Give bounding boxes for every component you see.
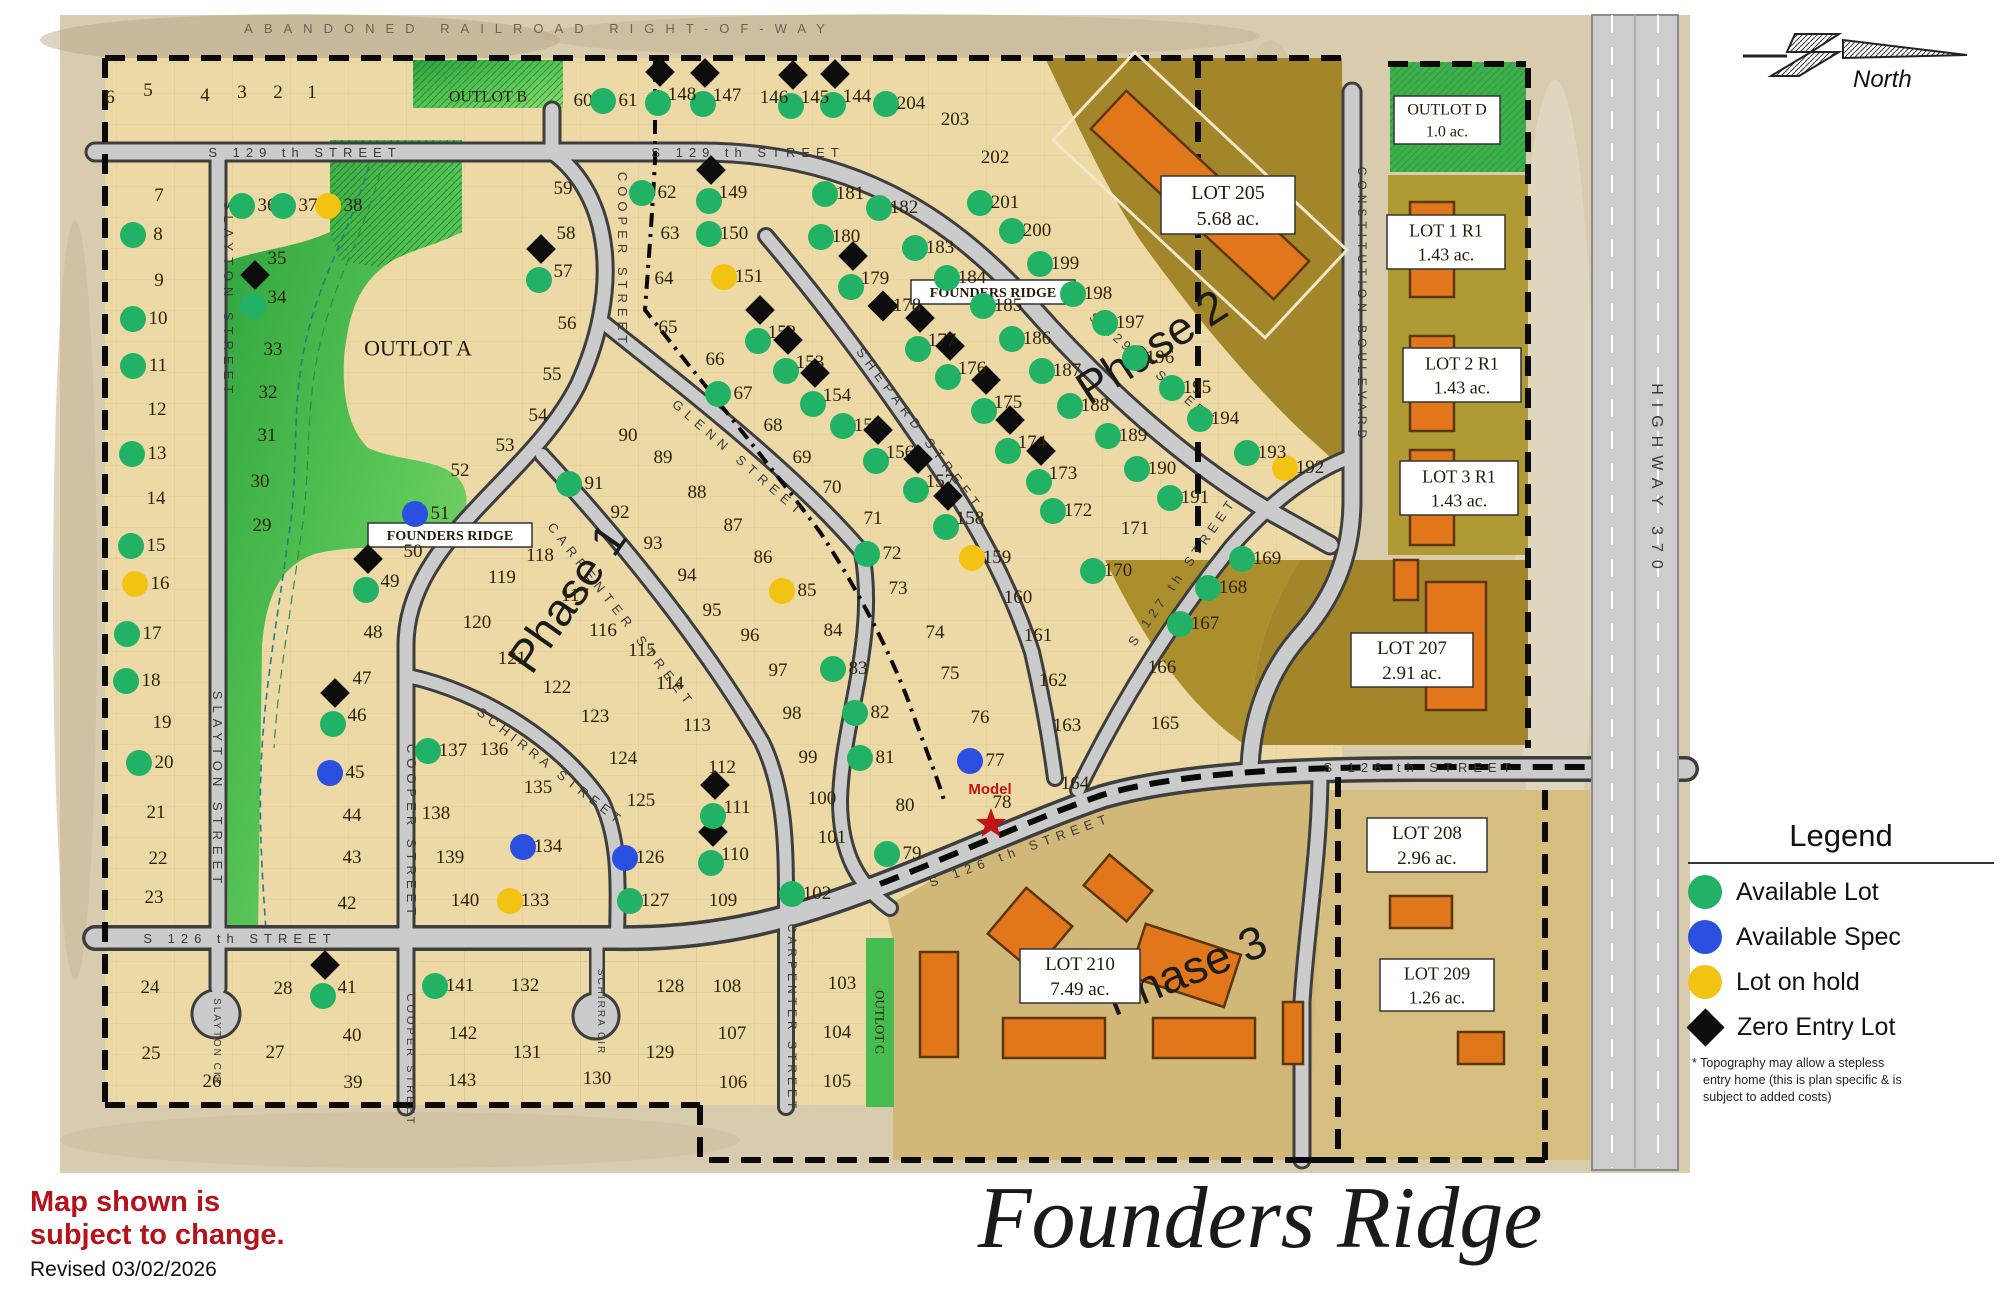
area-label: LOT 2082.96 ac. — [1367, 818, 1487, 872]
available-lot-icon — [842, 700, 868, 726]
lot-number: 31 — [258, 425, 277, 446]
lot-number: 92 — [611, 502, 630, 523]
lot-number: 12 — [148, 399, 167, 420]
lot-number: 128 — [656, 976, 685, 997]
lot-number: 104 — [823, 1022, 852, 1043]
lot-number: 154 — [823, 385, 852, 406]
lot-number: 21 — [147, 802, 166, 823]
lot-number: 189 — [1119, 425, 1148, 446]
street-label: SCHIRRA CIR — [595, 969, 606, 1055]
legend-footnote-line: subject to added costs) — [1692, 1089, 1994, 1106]
available-lot-icon — [1124, 456, 1150, 482]
available-lot-icon — [556, 471, 582, 497]
lot-number: 16 — [151, 573, 170, 594]
lot-number: 202 — [981, 147, 1010, 168]
lot-number: 50 — [404, 541, 423, 562]
disclaimer-line: subject to change. — [30, 1219, 285, 1252]
highway-370 — [1592, 15, 1678, 1170]
lot-number: 98 — [783, 703, 802, 724]
lot-number: 19 — [153, 712, 172, 733]
street-label: S 126 th STREET — [1323, 760, 1516, 775]
lot-number: 11 — [149, 355, 167, 376]
available-lot-icon — [1157, 485, 1183, 511]
available-lot-icon — [1159, 375, 1185, 401]
lot-number: 38 — [344, 195, 363, 216]
lot-number: 34 — [268, 287, 288, 308]
lot-number: 148 — [668, 84, 697, 105]
legend-item-spec: Available Spec — [1688, 920, 1994, 954]
lot-number: 44 — [343, 805, 363, 826]
disclaimer-line: Map shown is — [30, 1186, 285, 1219]
available-spec-icon — [957, 748, 983, 774]
lot-number: 173 — [1049, 463, 1078, 484]
area-label-text: 7.49 ac. — [1050, 979, 1110, 1000]
lot-number: 117 — [561, 585, 589, 606]
area-label-text: OUTLOT D — [1407, 102, 1486, 119]
lot-number: 145 — [801, 87, 830, 108]
lot-number: 55 — [543, 364, 562, 385]
area-label-text: 1.43 ac. — [1434, 377, 1490, 397]
available-lot-icon — [229, 193, 255, 219]
lot-number: 125 — [627, 790, 656, 811]
available-lot-icon — [999, 218, 1025, 244]
lot-number: 57 — [554, 261, 573, 282]
area-label: LOT 2107.49 ac. — [1020, 949, 1140, 1003]
lot-number: 194 — [1211, 408, 1240, 429]
lot-number: 53 — [496, 435, 515, 456]
lot-number: 101 — [818, 827, 847, 848]
available-lot-icon — [240, 293, 266, 319]
available-spec-icon — [612, 845, 638, 871]
lot-number: 186 — [1023, 328, 1052, 349]
lot-number: 203 — [941, 109, 970, 130]
lot-number: 111 — [723, 797, 750, 818]
lot-number: 118 — [526, 545, 554, 566]
available-lot-icon — [999, 326, 1025, 352]
available-lot-icon — [873, 91, 899, 117]
disclaimer-note: Map shown is subject to change. — [30, 1186, 285, 1252]
available-lot-icon — [590, 88, 616, 114]
area-label-text: 5.68 ac. — [1197, 208, 1260, 230]
lot-number: 87 — [724, 515, 743, 536]
lot-number: 33 — [264, 339, 283, 360]
north-label: North — [1853, 66, 1912, 94]
lot-number: 88 — [688, 482, 707, 503]
lot-number: 66 — [706, 349, 725, 370]
lot-number: 41 — [338, 977, 357, 998]
lot-number: 129 — [646, 1042, 675, 1063]
lot-number: 163 — [1053, 715, 1082, 736]
lot-number: 61 — [619, 90, 638, 111]
lot-number: 5 — [143, 80, 153, 101]
street-label: SLAYTON STREET — [221, 201, 236, 399]
lot-number: 191 — [1181, 487, 1210, 508]
railroad-right-of-way-label: ABANDONED RAILROAD RIGHT-OF-WAY — [244, 21, 836, 36]
lot-number: 198 — [1084, 283, 1113, 304]
area-label-text: LOT 3 R1 — [1422, 466, 1496, 486]
lot-number: 71 — [864, 508, 883, 529]
lot-number: 183 — [926, 237, 955, 258]
available-lot-icon — [830, 413, 856, 439]
area-label: LOT 1 R11.43 ac. — [1387, 215, 1505, 269]
lot-number: 48 — [364, 622, 383, 643]
street-label: S 129 th STREET — [651, 145, 844, 160]
lot-number: 158 — [956, 508, 985, 529]
lot-number: 150 — [720, 223, 749, 244]
lot-number: 54 — [529, 405, 549, 426]
lot-number: 62 — [658, 182, 677, 203]
legend-item-label: Zero Entry Lot — [1737, 1013, 1895, 1042]
lot-number: 49 — [381, 571, 400, 592]
lot-number: 85 — [798, 580, 817, 601]
area-label: LOT 2055.68 ac. — [1161, 176, 1295, 234]
street-label: CONSTITUTION BOULEVARD — [1355, 167, 1369, 443]
lot-number: 79 — [903, 843, 922, 864]
lot-number: 24 — [141, 977, 161, 998]
area-label-text: 1.43 ac. — [1431, 490, 1487, 510]
available-lot-icon — [970, 293, 996, 319]
area-label-text: OUTLOT C — [872, 990, 887, 1054]
plat-map-page: ABANDONED RAILROAD RIGHT-OF-WAYS 129 th … — [0, 0, 2000, 1294]
lot-number: 10 — [149, 308, 168, 329]
lot-number: 126 — [636, 847, 665, 868]
lot-number: 114 — [656, 673, 684, 694]
lot-number: 200 — [1023, 220, 1052, 241]
lot-number: 82 — [871, 702, 890, 723]
lot-number: 159 — [983, 547, 1012, 568]
street-label: S 126 th STREET — [143, 931, 336, 946]
available-spec-icon — [317, 760, 343, 786]
street-label: COOPER STREET — [615, 172, 630, 348]
lot-on-hold-icon — [959, 545, 985, 571]
available-lot-icon — [808, 224, 834, 250]
available-lot-icon — [1027, 251, 1053, 277]
legend-footnote: * Topography may allow a stepless entry … — [1688, 1055, 1994, 1106]
available-spec-icon — [402, 501, 428, 527]
lot-number: 146 — [760, 87, 789, 108]
lot-number: 72 — [883, 543, 902, 564]
north-pointer-icon — [1843, 40, 1967, 58]
lot-number: 136 — [480, 739, 509, 760]
lot-number: 182 — [890, 197, 919, 218]
lot-number: 124 — [609, 748, 638, 769]
lot-number: 134 — [534, 836, 563, 857]
lot-number: 69 — [793, 447, 812, 468]
lot-number: 39 — [344, 1072, 363, 1093]
page-title: Founders Ridge — [930, 1168, 1590, 1269]
available-lot-icon — [934, 265, 960, 291]
lot-number: 7 — [154, 185, 164, 206]
area-label: LOT 2091.26 ac. — [1380, 959, 1494, 1011]
available-lot-icon — [415, 738, 441, 764]
lot-number: 119 — [488, 567, 516, 588]
lot-number: 29 — [253, 515, 272, 536]
lot-number: 144 — [843, 86, 872, 107]
lot-number: 99 — [799, 747, 818, 768]
legend: Legend Available Lot Available Spec Lot … — [1688, 818, 1994, 1106]
lot-number: 130 — [583, 1068, 612, 1089]
lot-number: 120 — [463, 612, 492, 633]
lot-number: 65 — [659, 317, 678, 338]
available-lot-icon — [617, 888, 643, 914]
lot-number: 195 — [1183, 377, 1212, 398]
lot-number: 67 — [734, 383, 753, 404]
lot-number: 170 — [1104, 560, 1133, 581]
lot-number: 184 — [958, 267, 987, 288]
available-lot-icon — [902, 235, 928, 261]
available-lot-icon — [820, 656, 846, 682]
lot-number: 81 — [876, 747, 895, 768]
area-label: LOT 2072.91 ac. — [1351, 633, 1473, 687]
lot-number: 188 — [1081, 395, 1110, 416]
area-label-text: LOT 209 — [1404, 963, 1470, 983]
available-lot-icon — [114, 621, 140, 647]
available-lot-icon — [1688, 875, 1722, 909]
lot-number: 68 — [764, 415, 783, 436]
lot-number: 96 — [741, 625, 760, 646]
available-lot-icon — [1060, 281, 1086, 307]
lot-number: 91 — [585, 473, 604, 494]
area-label: LOT 3 R11.43 ac. — [1400, 461, 1518, 515]
lot-number: 8 — [153, 224, 163, 245]
available-lot-icon — [120, 222, 146, 248]
lot-number: 35 — [268, 248, 287, 269]
available-lot-icon — [120, 353, 146, 379]
area-label-text: LOT 208 — [1392, 823, 1462, 844]
area-label-text: LOT 1 R1 — [1409, 220, 1483, 240]
area-label: OUTLOT D1.0 ac. — [1394, 96, 1500, 144]
available-lot-icon — [119, 441, 145, 467]
lot-number: 135 — [524, 777, 553, 798]
available-lot-icon — [854, 541, 880, 567]
lot-number: 109 — [709, 890, 738, 911]
lot-number: 89 — [654, 447, 673, 468]
lot-number: 46 — [348, 705, 367, 726]
legend-item-available: Available Lot — [1688, 875, 1994, 909]
lot-number: 15 — [147, 535, 166, 556]
lot-number: 171 — [1121, 518, 1150, 539]
available-spec-icon — [1688, 920, 1722, 954]
area-label-text: OUTLOT A — [364, 336, 472, 361]
lot-number: 70 — [823, 477, 842, 498]
lot-number: 90 — [619, 425, 638, 446]
available-lot-icon — [1092, 310, 1118, 336]
lot-number: 108 — [713, 976, 742, 997]
lot-number: 83 — [849, 658, 868, 679]
lot-number: 139 — [436, 847, 465, 868]
lot-number: 149 — [719, 182, 748, 203]
available-lot-icon — [812, 181, 838, 207]
lot-number: 52 — [451, 460, 470, 481]
lot-number: 43 — [343, 847, 362, 868]
lot-number: 168 — [1219, 577, 1248, 598]
lot-number: 63 — [661, 223, 680, 244]
available-lot-icon — [1057, 393, 1083, 419]
revised-date: Revised 03/02/2026 — [30, 1258, 217, 1282]
lot-number: 58 — [557, 223, 576, 244]
lot-number: 23 — [145, 887, 164, 908]
lot-number: 40 — [343, 1025, 362, 1046]
lot-number: 177 — [928, 330, 957, 351]
lot-number: 28 — [274, 978, 293, 999]
lot-number: 13 — [148, 443, 167, 464]
lot-number: 115 — [628, 640, 656, 661]
street-label: CARPENTER STREET — [785, 924, 799, 1113]
lot-number: 110 — [721, 844, 749, 865]
lot-number: 76 — [971, 707, 990, 728]
legend-item-label: Lot on hold — [1736, 968, 1860, 997]
lot-number: 80 — [896, 795, 915, 816]
lot-number: 162 — [1039, 670, 1068, 691]
lot-number: 122 — [543, 677, 572, 698]
lot-number: 102 — [803, 883, 832, 904]
area-label: LOT 2 R11.43 ac. — [1403, 348, 1521, 402]
lot-number: 17 — [143, 623, 162, 644]
available-lot-icon — [1167, 611, 1193, 637]
lot-number: 2 — [273, 82, 283, 103]
lot-number: 113 — [683, 715, 711, 736]
available-lot-icon — [698, 850, 724, 876]
lot-on-hold-icon — [769, 578, 795, 604]
available-lot-icon — [270, 193, 296, 219]
lot-number: 137 — [439, 740, 468, 761]
street-label: COOPER STREET — [404, 993, 416, 1126]
legend-title: Legend — [1688, 818, 1994, 864]
available-spec-icon — [510, 834, 536, 860]
lot-number: 26 — [203, 1071, 222, 1092]
lot-number: 45 — [346, 762, 365, 783]
lot-number: 178 — [893, 295, 922, 316]
lot-number: 142 — [449, 1023, 478, 1044]
lot-number: 192 — [1296, 457, 1325, 478]
lot-number: 6 — [105, 87, 115, 108]
lot-number: 112 — [708, 757, 736, 778]
street-label: HIGHWAY 370 — [1648, 383, 1665, 577]
available-lot-icon — [1234, 440, 1260, 466]
available-lot-icon — [126, 750, 152, 776]
lot-number: 161 — [1024, 625, 1053, 646]
lot-number: 201 — [991, 192, 1020, 213]
lot-number: 86 — [754, 547, 773, 568]
lot-number: 176 — [958, 358, 987, 379]
lot-number: 1 — [307, 82, 317, 103]
available-lot-icon — [120, 306, 146, 332]
available-lot-icon — [1080, 558, 1106, 584]
legend-item-label: Available Spec — [1736, 923, 1901, 952]
available-lot-icon — [320, 711, 346, 737]
lot-number: 94 — [678, 565, 698, 586]
area-label-text: OUTLOT B — [449, 89, 527, 106]
available-lot-icon — [1122, 345, 1148, 371]
available-lot-icon — [310, 983, 336, 1009]
available-lot-icon — [113, 668, 139, 694]
available-lot-icon — [779, 881, 805, 907]
lot-number: 75 — [941, 663, 960, 684]
lot-number: 138 — [422, 803, 451, 824]
available-lot-icon — [1029, 358, 1055, 384]
lot-number: 167 — [1191, 613, 1220, 634]
area-label-text: 2.91 ac. — [1382, 663, 1442, 684]
area-label-text: LOT 2 R1 — [1425, 353, 1499, 373]
area-label: OUTLOT C — [872, 990, 887, 1054]
lot-number: 97 — [769, 660, 788, 681]
area-label-text: LOT 207 — [1377, 638, 1447, 659]
available-lot-icon — [874, 841, 900, 867]
available-lot-icon — [1229, 546, 1255, 572]
model-home-label: Model — [968, 781, 1011, 798]
lot-number: 181 — [836, 183, 865, 204]
street-label: COOPER STREET — [404, 744, 419, 920]
lot-number: 141 — [446, 975, 475, 996]
area-label-text: 1.26 ac. — [1409, 987, 1465, 1007]
area-label-text: LOT 205 — [1191, 182, 1265, 204]
lot-number: 127 — [641, 890, 670, 911]
lot-number: 9 — [154, 270, 164, 291]
available-lot-icon — [422, 973, 448, 999]
lot-number: 95 — [703, 600, 722, 621]
available-lot-icon — [1187, 406, 1213, 432]
lot-on-hold-icon — [315, 193, 341, 219]
lot-number: 179 — [861, 268, 890, 289]
lot-number: 143 — [448, 1070, 477, 1091]
legend-item-label: Available Lot — [1736, 878, 1879, 907]
lot-number: 193 — [1258, 442, 1287, 463]
lot-number: 105 — [823, 1071, 852, 1092]
available-lot-icon — [629, 180, 655, 206]
lot-number: 187 — [1053, 360, 1082, 381]
lot-number: 14 — [147, 488, 167, 509]
lot-number: 77 — [986, 750, 1005, 771]
north-arrow: North — [1735, 22, 1975, 100]
available-lot-icon — [866, 195, 892, 221]
available-lot-icon — [1195, 575, 1221, 601]
legend-item-hold: Lot on hold — [1688, 965, 1994, 999]
lot-number: 42 — [338, 893, 357, 914]
lot-number: 100 — [808, 788, 837, 809]
available-lot-icon — [1095, 423, 1121, 449]
lot-number: 74 — [926, 622, 946, 643]
area-label-text: 1.0 ac. — [1426, 124, 1468, 141]
lot-number: 133 — [521, 890, 550, 911]
available-lot-icon — [696, 221, 722, 247]
lot-number: 185 — [994, 295, 1023, 316]
available-lot-icon — [526, 267, 552, 293]
available-lot-icon — [118, 533, 144, 559]
lot-number: 93 — [644, 533, 663, 554]
lot-number: 190 — [1148, 458, 1177, 479]
available-lot-icon — [353, 577, 379, 603]
lot-number: 18 — [142, 670, 161, 691]
lot-number: 131 — [513, 1042, 542, 1063]
lot-number: 147 — [713, 85, 742, 106]
lot-number: 140 — [451, 890, 480, 911]
lot-number: 37 — [299, 195, 318, 216]
lot-number: 20 — [155, 752, 174, 773]
area-label: OUTLOT B — [449, 89, 527, 106]
available-lot-icon — [847, 745, 873, 771]
available-lot-icon — [1040, 498, 1066, 524]
lot-number: 4 — [200, 85, 210, 106]
street-label: S 129 th STREET — [208, 145, 401, 160]
area-label-text: LOT 210 — [1045, 954, 1115, 975]
zero-entry-lot-icon — [1686, 1008, 1724, 1046]
lot-number: 22 — [149, 848, 168, 869]
lot-number: 123 — [581, 706, 610, 727]
lot-number: 103 — [828, 973, 857, 994]
lot-number: 172 — [1064, 500, 1093, 521]
lot-number: 56 — [558, 313, 577, 334]
lot-number: 3 — [237, 82, 247, 103]
